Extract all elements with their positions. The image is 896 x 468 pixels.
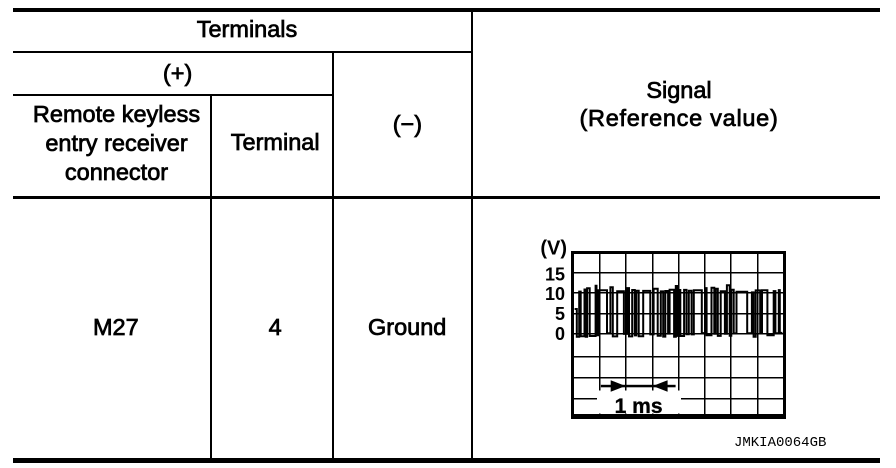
svg-text:JMKIA0064GB: JMKIA0064GB: [734, 435, 826, 451]
svg-text:(V): (V): [540, 238, 567, 260]
svg-text:15: 15: [545, 265, 565, 285]
svg-text:10: 10: [545, 284, 565, 304]
svg-text:0: 0: [555, 324, 565, 344]
svg-text:5: 5: [555, 304, 565, 324]
